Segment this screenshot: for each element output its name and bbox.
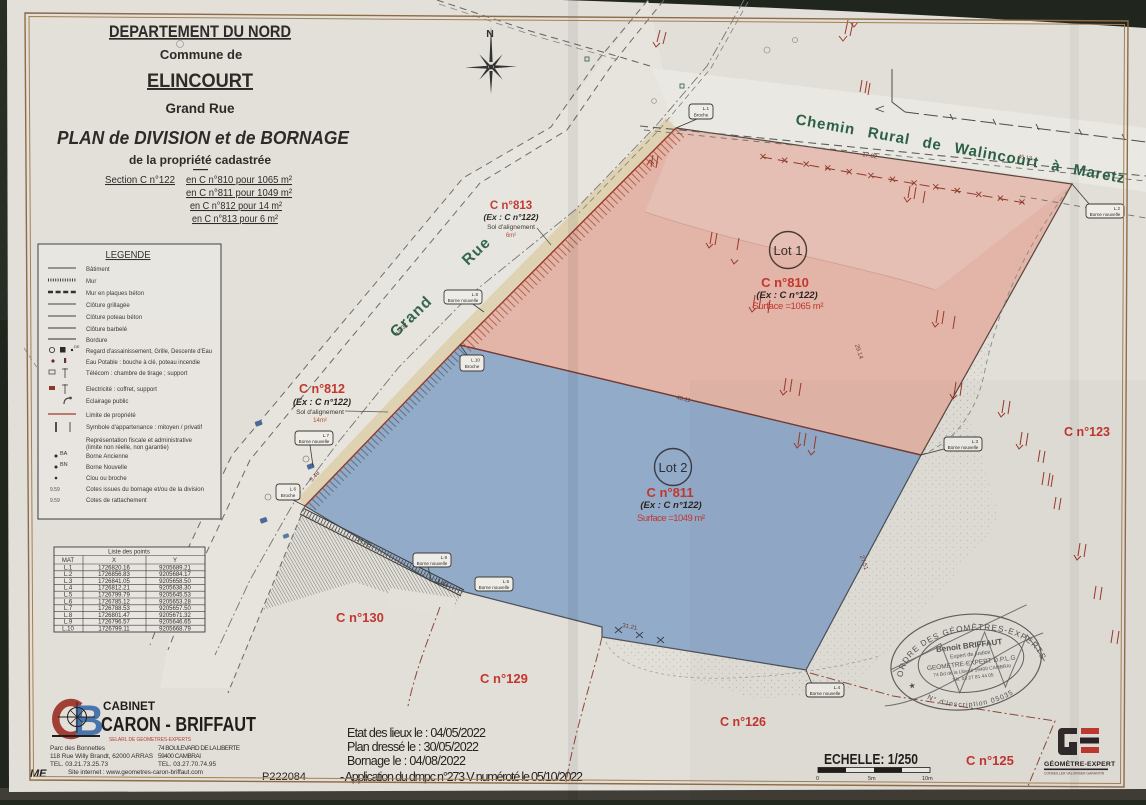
svg-text:1726820.16: 1726820.16 [98, 565, 130, 571]
svg-text:Eclairage public: Eclairage public [86, 399, 128, 405]
svg-text:BA: BA [60, 451, 68, 457]
svg-text:BN: BN [60, 462, 68, 468]
svg-text:9205645.53: 9205645.53 [159, 593, 191, 599]
svg-text:Y: Y [173, 558, 177, 564]
svg-text:Borne nouvelle: Borne nouvelle [299, 439, 330, 444]
svg-text:1726801.47: 1726801.47 [98, 613, 130, 619]
svg-text:L.7: L.7 [64, 606, 73, 612]
svg-text:L.5: L.5 [64, 593, 73, 599]
svg-text:L.6: L.6 [290, 487, 297, 492]
svg-text:9.59: 9.59 [50, 498, 60, 504]
svg-text:L.2: L.2 [1114, 206, 1121, 211]
svg-text:Plan dressé le : 30/05/2022: Plan dressé le : 30/05/2022 [347, 740, 479, 754]
svg-text:14m²: 14m² [313, 418, 327, 424]
svg-text:Liste des points: Liste des points [108, 550, 150, 556]
svg-text:L.8: L.8 [64, 613, 73, 619]
svg-text:Télécom : chambre de tirage ;: Télécom : chambre de tirage ; support [86, 371, 188, 377]
svg-text:SELARL DE GEOMETRES-EXPERTS: SELARL DE GEOMETRES-EXPERTS [109, 737, 191, 743]
svg-text:C n°812: C n°812 [299, 382, 345, 396]
svg-text:9205657.50: 9205657.50 [159, 606, 191, 612]
svg-text:Lot 2: Lot 2 [659, 460, 688, 475]
svg-text:Etat des lieux le : 04/05/2022: Etat des lieux le : 04/05/2022 [347, 726, 486, 740]
svg-text:L.2: L.2 [64, 572, 73, 578]
svg-text:9205671.32: 9205671.32 [159, 613, 191, 619]
svg-text:CABINET: CABINET [103, 699, 156, 713]
svg-text:B: B [73, 697, 104, 745]
svg-text:Sol d'alignement: Sol d'alignement [296, 409, 344, 416]
svg-text:9205689.21: 9205689.21 [159, 565, 191, 571]
svg-text:Surface =1065 m²: Surface =1065 m² [753, 301, 824, 312]
svg-text:L.9: L.9 [64, 620, 73, 626]
svg-text:Bornage le : 04/08/2022: Bornage le : 04/08/2022 [347, 754, 466, 768]
svg-text:1726812.21: 1726812.21 [98, 586, 130, 592]
svg-text:Broche: Broche [281, 493, 296, 498]
svg-text:118 Rue Willy Brandt, 62000 AR: 118 Rue Willy Brandt, 62000 ARRAS [50, 753, 153, 760]
svg-text:Borne nouvelle: Borne nouvelle [417, 561, 448, 566]
svg-text:Borne Nouvelle: Borne Nouvelle [86, 465, 128, 471]
svg-text:1726788.53: 1726788.53 [98, 606, 130, 612]
svg-text:ME: ME [30, 768, 47, 780]
svg-text:CARON - BRIFFAUT: CARON - BRIFFAUT [101, 713, 256, 736]
svg-text:X: X [112, 558, 116, 564]
svg-text:1726799.79: 1726799.79 [98, 593, 130, 599]
svg-text:L.5: L.5 [503, 579, 510, 584]
svg-text:L.6: L.6 [64, 599, 73, 605]
svg-text:L.10: L.10 [471, 358, 480, 363]
svg-text:Cotes de rattachement: Cotes de rattachement [86, 498, 147, 504]
svg-text:Clôture barbelé: Clôture barbelé [86, 327, 128, 333]
svg-text:TEL. 03.21.73.25.73: TEL. 03.21.73.25.73 [50, 761, 108, 768]
svg-text:Borne Ancienne: Borne Ancienne [86, 454, 129, 460]
svg-text:Broche: Broche [465, 364, 480, 369]
svg-text:Symbole d'appartenance : mitoy: Symbole d'appartenance : mitoyen / priva… [86, 425, 202, 431]
svg-text:(limite non réelle, non garant: (limite non réelle, non garantie) [86, 445, 169, 451]
svg-text:L.1: L.1 [703, 106, 710, 111]
svg-text:9205646.65: 9205646.65 [159, 620, 191, 626]
svg-text:Cotes issues du bornage et/ou: Cotes issues du bornage et/ou de la divi… [86, 487, 204, 493]
svg-text:1726841.05: 1726841.05 [98, 579, 130, 585]
svg-text:C n°130: C n°130 [336, 610, 384, 625]
svg-text:9205658.50: 9205658.50 [159, 579, 191, 585]
svg-text:L.9: L.9 [441, 555, 448, 560]
svg-text:C n°129: C n°129 [480, 671, 528, 686]
svg-text:1726785.12: 1726785.12 [98, 599, 130, 605]
svg-text:Clou ou broche: Clou ou broche [86, 476, 127, 482]
svg-text:L.10: L.10 [62, 627, 74, 633]
svg-text:Borne nouvelle: Borne nouvelle [479, 585, 510, 590]
svg-text:L.7: L.7 [323, 433, 330, 438]
svg-text:59400 CAMBRAI: 59400 CAMBRAI [158, 753, 201, 760]
svg-text:Limite de propriété: Limite de propriété [86, 413, 136, 419]
svg-text:L.3: L.3 [64, 579, 73, 585]
svg-text:Eau Potable : bouche à clé, po: Eau Potable : bouche à clé, poteau incen… [86, 360, 201, 366]
svg-text:1726856.83: 1726856.83 [98, 572, 130, 578]
svg-text:9.59: 9.59 [50, 487, 60, 493]
svg-text:Site internet : www.geometres-: Site internet : www.geometres-caron-brif… [68, 769, 203, 776]
svg-text:Regard d'assainissement, Grill: Regard d'assainissement, Grille, Descent… [86, 349, 212, 355]
svg-text:Broche: Broche [694, 113, 709, 118]
svg-text:9205653.28: 9205653.28 [159, 599, 191, 605]
svg-text:74 BOULEVARD DE LA LIBERTE: 74 BOULEVARD DE LA LIBERTE [158, 745, 240, 752]
svg-text:9205684.17: 9205684.17 [159, 572, 191, 578]
svg-text:DE: DE [74, 344, 80, 349]
svg-text:9205668.79: 9205668.79 [159, 627, 191, 633]
svg-text:Bordure: Bordure [86, 338, 108, 344]
svg-text:MAT: MAT [62, 558, 75, 564]
svg-text:9205638.30: 9205638.30 [159, 586, 191, 592]
svg-text:L.4: L.4 [64, 586, 73, 592]
svg-text:L.1: L.1 [64, 565, 73, 571]
svg-text:(Ex : C n°122): (Ex : C n°122) [293, 397, 351, 407]
svg-text:Représentation fiscale et admi: Représentation fiscale et administrative [86, 438, 193, 444]
svg-text:Lot 1: Lot 1 [774, 243, 803, 258]
svg-text:1726796.57: 1726796.57 [98, 620, 130, 626]
svg-text:(Ex : C n°122): (Ex : C n°122) [756, 290, 817, 301]
svg-text:C n°810: C n°810 [761, 275, 809, 290]
svg-text:TEL. 03.27.70.74.95: TEL. 03.27.70.74.95 [158, 761, 216, 768]
svg-text:Parc des Bonnettes: Parc des Bonnettes [50, 745, 105, 752]
svg-text:C n°811: C n°811 [646, 485, 693, 500]
svg-text:1726799.11: 1726799.11 [98, 627, 130, 633]
svg-text:Borne nouvelle: Borne nouvelle [1090, 212, 1121, 217]
svg-text:Electricité : coffret, support: Electricité : coffret, support [86, 387, 157, 393]
